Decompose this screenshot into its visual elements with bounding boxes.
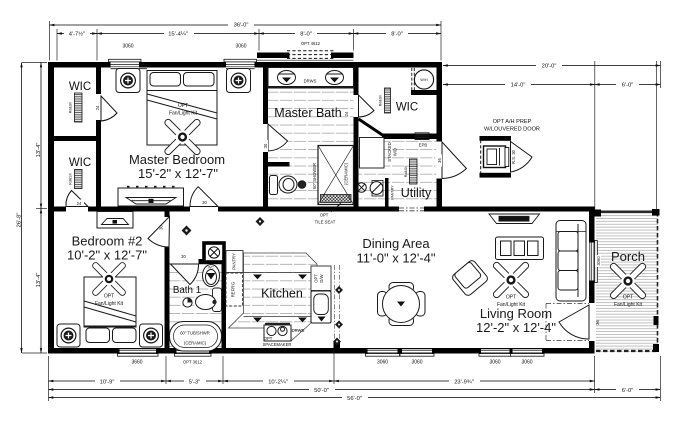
svg-text:REFR'G: REFR'G — [231, 282, 236, 297]
svg-text:20'-0": 20'-0" — [542, 64, 557, 70]
svg-text:Rd&Sh: Rd&Sh — [69, 102, 73, 113]
svg-text:4'-7½": 4'-7½" — [69, 31, 85, 38]
svg-text:3060: 3060 — [377, 360, 388, 366]
svg-text:Master Bedroom: Master Bedroom — [129, 152, 225, 167]
svg-text:Kitchen: Kitchen — [261, 287, 303, 301]
svg-text:Fan/Light Kit: Fan/Light Kit — [95, 301, 124, 307]
svg-text:OPT A/H PREP: OPT A/H PREP — [493, 119, 532, 125]
svg-text:13'-4": 13'-4" — [36, 143, 42, 158]
svg-text:10'-2" x 12'-7": 10'-2" x 12'-7" — [67, 248, 147, 263]
svg-text:Bedroom #2: Bedroom #2 — [72, 234, 143, 249]
svg-text:26'-8": 26'-8" — [17, 213, 23, 228]
svg-text:36: 36 — [595, 320, 600, 325]
svg-text:OPT: OPT — [320, 213, 329, 218]
svg-text:(CERAMIC): (CERAMIC) — [344, 162, 349, 185]
svg-text:5'-3": 5'-3" — [189, 380, 201, 386]
svg-text:3060: 3060 — [235, 44, 246, 50]
svg-text:3060: 3060 — [411, 360, 422, 366]
svg-text:3060: 3060 — [596, 256, 601, 266]
svg-text:DRWS: DRWS — [304, 79, 317, 84]
svg-text:3060: 3060 — [489, 360, 500, 366]
svg-text:W/LOUVERED DOOR: W/LOUVERED DOOR — [484, 127, 540, 133]
svg-text:Fan/Light Kit: Fan/Light Kit — [169, 111, 198, 117]
svg-text:WIC: WIC — [396, 102, 418, 114]
svg-text:PANTRY: PANTRY — [232, 253, 237, 270]
svg-text:DRWS: DRWS — [292, 328, 305, 333]
svg-text:WIC: WIC — [69, 81, 91, 93]
svg-text:11'-0" x 12'-4": 11'-0" x 12'-4" — [357, 251, 436, 266]
svg-text:13'-4": 13'-4" — [36, 273, 42, 288]
svg-text:EPB: EPB — [419, 143, 428, 148]
svg-text:3660: 3660 — [131, 360, 142, 366]
svg-text:15'-2" x 12'-7": 15'-2" x 12'-7" — [138, 166, 218, 181]
svg-text:SPACEMAKER: SPACEMAKER — [263, 342, 292, 347]
svg-text:30: 30 — [202, 200, 207, 205]
svg-text:24: 24 — [77, 201, 82, 206]
svg-text:W/D: W/D — [393, 148, 398, 156]
svg-text:Rd&Sh: Rd&Sh — [379, 95, 383, 106]
svg-text:24: 24 — [95, 105, 100, 110]
svg-text:PANTRY: PANTRY — [391, 185, 395, 200]
svg-text:10'-2¼": 10'-2¼" — [268, 380, 288, 386]
svg-text:50'-0": 50'-0" — [314, 388, 329, 394]
svg-text:OPT: OPT — [104, 294, 114, 300]
svg-text:56'-0": 56'-0" — [347, 396, 362, 402]
svg-text:Bath 1: Bath 1 — [173, 285, 201, 296]
svg-text:6'-0": 6'-0" — [622, 83, 634, 89]
svg-text:15'-4¼": 15'-4¼" — [168, 32, 188, 38]
svg-text:36: 36 — [437, 158, 442, 163]
svg-text:OPT: OPT — [178, 103, 188, 109]
svg-text:14'-0": 14'-0" — [511, 83, 526, 89]
svg-text:Rd&Sh: Rd&Sh — [404, 166, 408, 177]
svg-text:36'-0": 36'-0" — [234, 23, 249, 29]
svg-text:30: 30 — [263, 143, 268, 148]
svg-text:(CERAMIC): (CERAMIC) — [184, 341, 207, 346]
svg-text:Fan/Light Kit: Fan/Light Kit — [614, 302, 643, 308]
svg-text:OPT: OPT — [314, 274, 319, 283]
svg-text:10'-9": 10'-9" — [100, 380, 115, 386]
svg-text:8'-0": 8'-0" — [300, 32, 312, 38]
svg-text:W/H: W/H — [420, 78, 428, 82]
svg-text:Utility: Utility — [401, 186, 432, 200]
svg-text:Porch: Porch — [611, 249, 645, 264]
svg-text:Fan/Light Kit: Fan/Light Kit — [497, 302, 526, 308]
svg-text:60" SHOWER: 60" SHOWER — [312, 163, 317, 189]
svg-text:Living Room: Living Room — [480, 306, 552, 321]
svg-text:D/W: D/W — [319, 274, 324, 282]
svg-text:OPT: OPT — [264, 336, 273, 341]
svg-text:Rd&Sh: Rd&Sh — [69, 173, 73, 184]
svg-text:WIC: WIC — [69, 157, 91, 169]
svg-text:OPT 3612: OPT 3612 — [183, 360, 203, 365]
svg-text:12'-2" x 12'-4": 12'-2" x 12'-4" — [476, 320, 556, 335]
svg-text:STACKED: STACKED — [387, 142, 392, 161]
svg-text:OPT: OPT — [623, 295, 633, 301]
svg-text:TILE SEAT: TILE SEAT — [315, 220, 336, 225]
svg-text:8'-0": 8'-0" — [391, 32, 403, 38]
svg-text:23'-9¾": 23'-9¾" — [454, 380, 474, 386]
svg-text:OPT 4612: OPT 4612 — [301, 41, 321, 46]
svg-text:WC: WC — [208, 266, 214, 270]
svg-text:3060: 3060 — [521, 360, 532, 366]
svg-text:Master Bath: Master Bath — [274, 106, 341, 120]
svg-text:OPT: OPT — [506, 295, 516, 301]
svg-text:30: 30 — [181, 254, 186, 259]
svg-text:24: 24 — [344, 111, 349, 116]
svg-text:Dining Area: Dining Area — [362, 236, 430, 251]
svg-text:R.S. 30: R.S. 30 — [511, 149, 516, 164]
svg-text:30: 30 — [159, 225, 164, 230]
svg-text:6'-0": 6'-0" — [622, 388, 634, 394]
svg-text:3060: 3060 — [122, 44, 133, 50]
svg-text:60" TUB/SHWR: 60" TUB/SHWR — [180, 331, 210, 336]
